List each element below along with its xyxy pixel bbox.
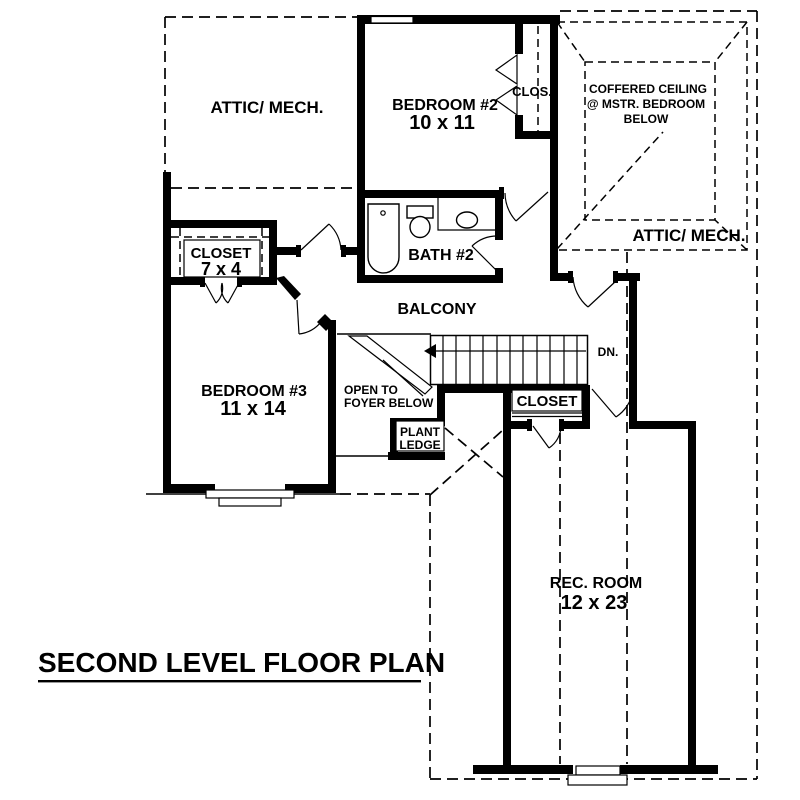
label-open-foyer-2: FOYER BELOW xyxy=(344,396,434,410)
label-understairs-closet: CLOSET xyxy=(517,393,578,410)
label-balcony: BALCONY xyxy=(397,301,476,318)
label-attic-mech-right: ATTIC/ MECH. xyxy=(632,226,745,245)
bedroom2-window xyxy=(371,17,413,24)
toilet-bowl xyxy=(410,217,430,238)
label-clos: CLOS. xyxy=(512,84,552,99)
label-attic-mech-left: ATTIC/ MECH. xyxy=(210,98,323,117)
plan-title: SECOND LEVEL FLOOR PLAN xyxy=(38,647,445,678)
label-rec-room: REC. ROOM xyxy=(550,575,642,592)
label-coffered-2: @ MSTR. BEDROOM xyxy=(587,97,705,111)
floor-plan-drawing: ATTIC/ MECH. BEDROOM #2 10 x 11 CLOS. CO… xyxy=(0,0,800,800)
label-bedroom2-dims: 10 x 11 xyxy=(409,112,475,134)
label-plant-2: LEDGE xyxy=(399,438,440,452)
floor-plan-page: ATTIC/ MECH. BEDROOM #2 10 x 11 CLOS. CO… xyxy=(0,0,800,800)
plan-title-group: SECOND LEVEL FLOOR PLAN xyxy=(38,647,445,682)
label-coffered-3: BELOW xyxy=(624,112,669,126)
label-bedroom3-dims: 11 x 14 xyxy=(220,398,287,420)
label-rec-room-dims: 12 x 23 xyxy=(561,592,628,614)
label-open-foyer-1: OPEN TO xyxy=(344,383,398,397)
bedroom3-window xyxy=(206,490,294,498)
label-coffered-1: COFFERED CEILING xyxy=(589,82,707,96)
recroom-window-sill xyxy=(568,775,627,785)
label-dn: DN. xyxy=(598,345,619,359)
bedroom3-window-sill xyxy=(219,498,281,506)
recroom-window xyxy=(576,766,620,775)
label-plant-1: PLANT xyxy=(400,425,441,439)
label-bath2: BATH #2 xyxy=(408,247,474,264)
bathtub xyxy=(368,204,399,273)
vanity-sink xyxy=(457,212,478,228)
plan-title-underline xyxy=(38,680,421,682)
label-closet7x4-dims: 7 x 4 xyxy=(201,259,241,279)
